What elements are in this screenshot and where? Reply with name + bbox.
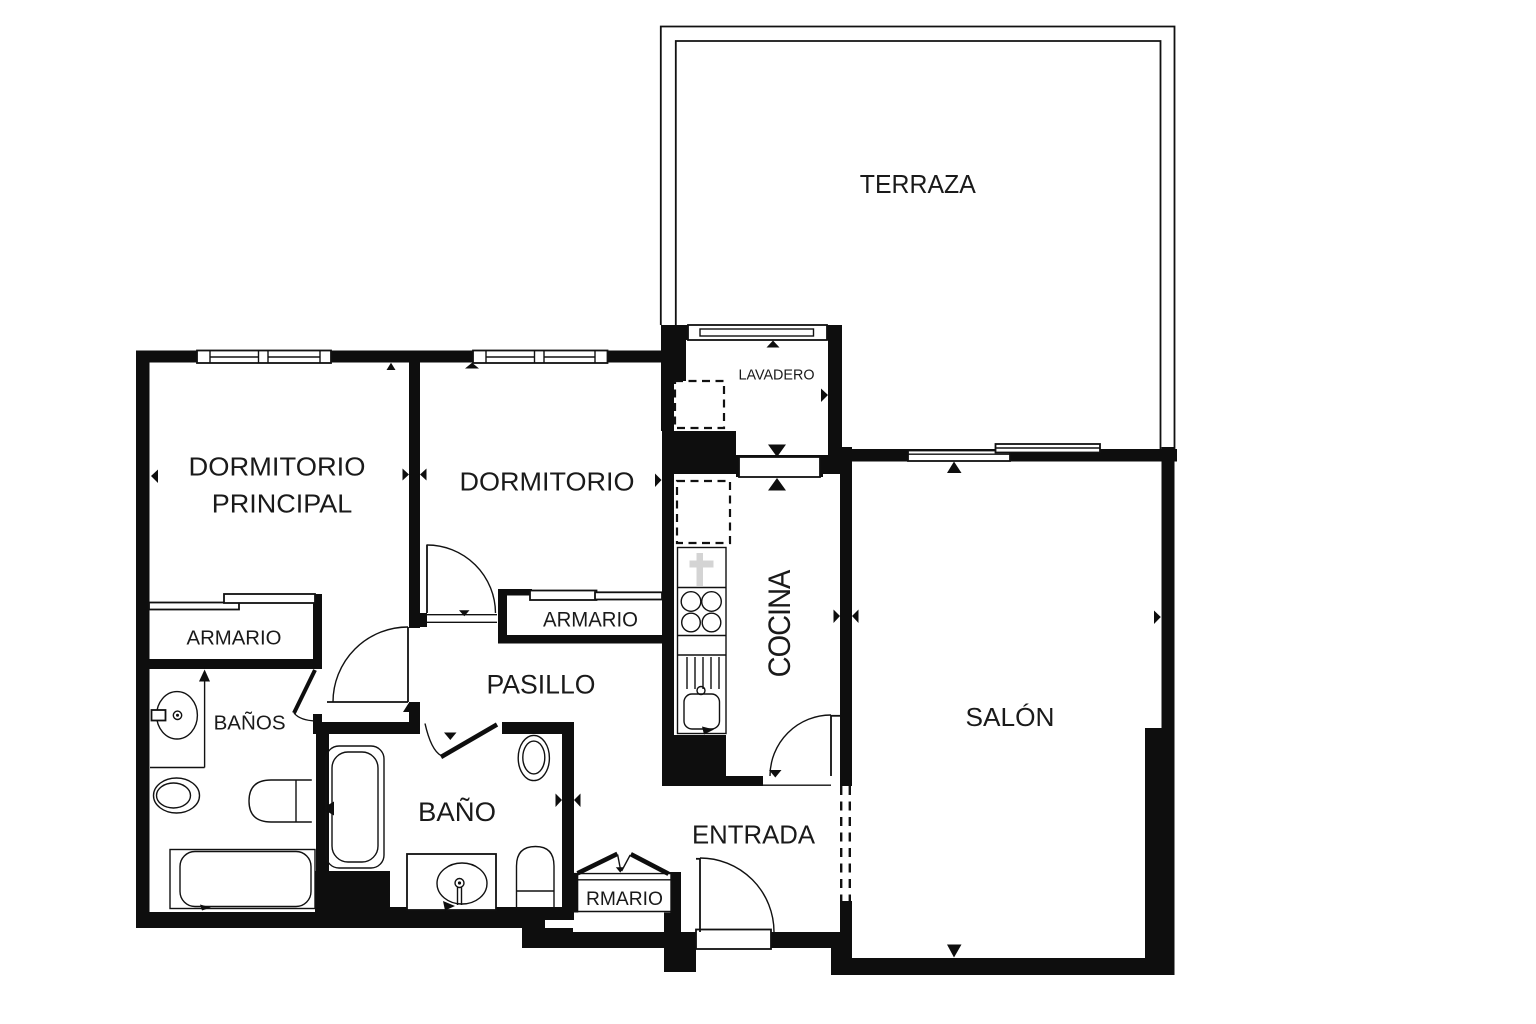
svg-text:SALÓN: SALÓN	[966, 702, 1055, 732]
svg-text:DORMITORIO: DORMITORIO	[189, 454, 366, 482]
svg-text:RMARIO: RMARIO	[586, 889, 663, 910]
svg-text:BAÑO: BAÑO	[418, 797, 496, 827]
svg-text:PASILLO: PASILLO	[487, 670, 596, 700]
svg-text:COCINA: COCINA	[762, 569, 798, 677]
svg-text:ENTRADA: ENTRADA	[692, 822, 815, 850]
svg-text:DORMITORIO: DORMITORIO	[460, 469, 635, 497]
svg-text:LAVADERO: LAVADERO	[739, 367, 815, 384]
svg-text:PRINCIPAL: PRINCIPAL	[212, 491, 353, 519]
svg-text:ARMARIO: ARMARIO	[187, 627, 282, 650]
svg-text:ARMARIO: ARMARIO	[543, 609, 638, 632]
svg-text:TERRAZA: TERRAZA	[860, 171, 976, 199]
svg-text:BAÑOS: BAÑOS	[214, 712, 286, 735]
